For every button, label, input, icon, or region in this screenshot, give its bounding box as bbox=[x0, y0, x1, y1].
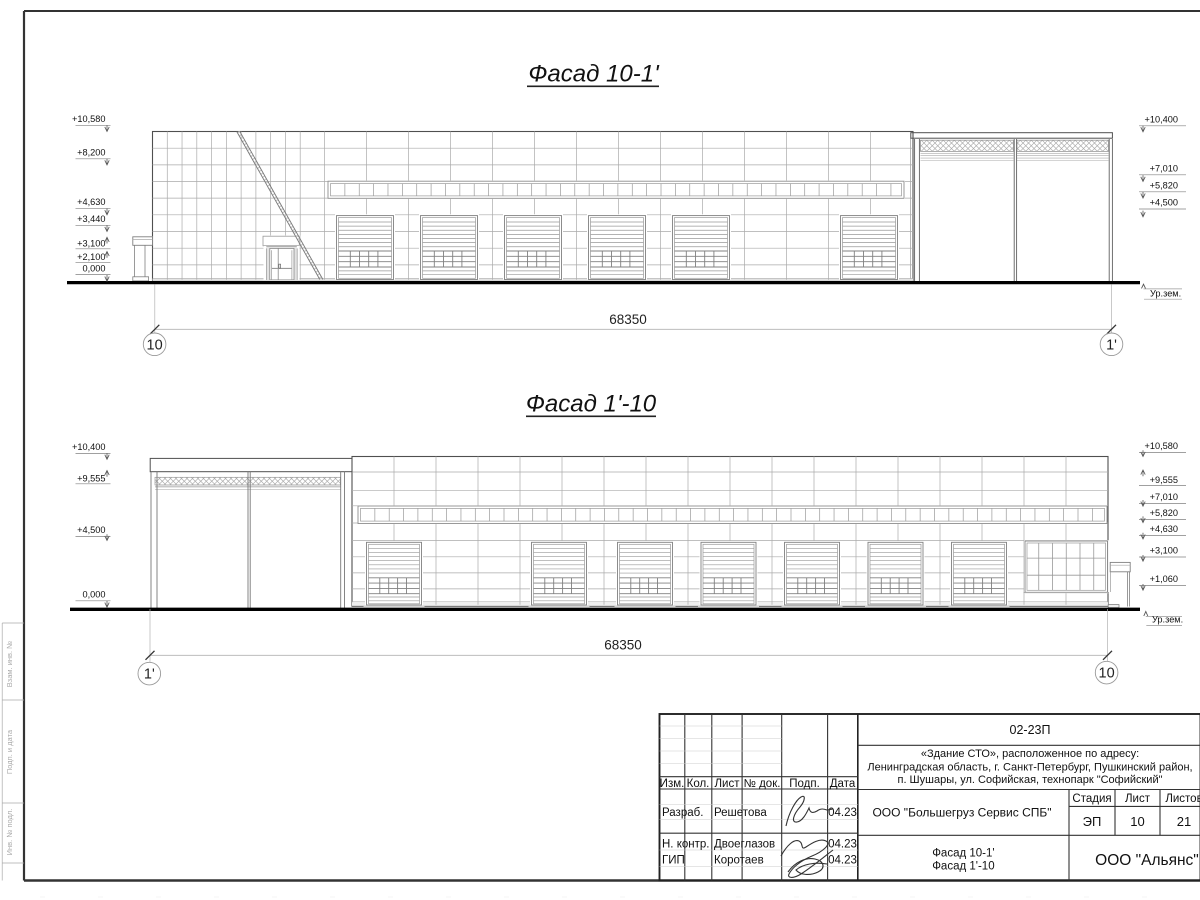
svg-text:Лист: Лист bbox=[715, 778, 741, 790]
svg-text:+10,580: +10,580 bbox=[1145, 441, 1178, 451]
svg-text:+3,440: +3,440 bbox=[77, 214, 105, 224]
svg-text:+4,500: +4,500 bbox=[77, 525, 105, 535]
svg-text:Решетова: Решетова bbox=[714, 807, 767, 819]
svg-text:п. Шушары, ул. Софийская, техн: п. Шушары, ул. Софийская, технопарк "Соф… bbox=[897, 774, 1162, 786]
svg-text:Изм.: Изм. bbox=[660, 778, 685, 790]
svg-text:Фасад 10-1': Фасад 10-1' bbox=[528, 61, 660, 88]
svg-text:68350: 68350 bbox=[604, 638, 642, 653]
svg-text:ЭП: ЭП bbox=[1083, 814, 1102, 829]
svg-text:+3,100: +3,100 bbox=[1150, 546, 1178, 556]
svg-text:Ленинградская область, г. Санк: Ленинградская область, г. Санкт-Петербур… bbox=[867, 762, 1192, 774]
svg-text:ООО "Большегруз Сервис СПБ": ООО "Большегруз Сервис СПБ" bbox=[872, 806, 1051, 820]
svg-text:Коротаев: Коротаев bbox=[714, 855, 764, 867]
svg-text:+5,820: +5,820 bbox=[1150, 508, 1178, 518]
svg-text:Фасад 1'-10: Фасад 1'-10 bbox=[932, 860, 994, 872]
svg-text:0,000: 0,000 bbox=[83, 263, 106, 273]
svg-text:Дата: Дата bbox=[830, 778, 856, 790]
svg-text:10: 10 bbox=[147, 337, 163, 353]
svg-text:+7,010: +7,010 bbox=[1150, 492, 1178, 502]
svg-text:Ур.зем.: Ур.зем. bbox=[1150, 288, 1181, 298]
svg-text:+8,200: +8,200 bbox=[77, 147, 105, 157]
svg-text:ООО "Альянс": ООО "Альянс" bbox=[1095, 852, 1199, 869]
svg-text:+4,630: +4,630 bbox=[1150, 524, 1178, 534]
svg-text:Разраб.: Разраб. bbox=[662, 807, 703, 819]
svg-text:Инв. № подл.: Инв. № подл. bbox=[5, 809, 14, 856]
svg-text:Листов: Листов bbox=[1165, 793, 1200, 805]
svg-text:ГИП: ГИП bbox=[662, 855, 685, 867]
svg-text:+10,400: +10,400 bbox=[1145, 114, 1178, 124]
svg-text:+2,100: +2,100 bbox=[77, 252, 105, 262]
svg-text:Лист: Лист bbox=[1125, 793, 1151, 805]
svg-text:04.23: 04.23 bbox=[828, 855, 857, 867]
svg-text:+3,100: +3,100 bbox=[77, 238, 105, 248]
svg-text:10: 10 bbox=[1130, 814, 1144, 829]
svg-text:Фасад 1'-10: Фасад 1'-10 bbox=[526, 391, 657, 418]
svg-text:+9,555: +9,555 bbox=[77, 473, 105, 483]
svg-text:«Здание СТО», расположенное по: «Здание СТО», расположенное по адресу: bbox=[921, 748, 1139, 760]
svg-text:+9,555: +9,555 bbox=[1150, 475, 1178, 485]
svg-text:68350: 68350 bbox=[609, 312, 647, 327]
svg-text:+7,010: +7,010 bbox=[1150, 163, 1178, 173]
svg-text:04.23: 04.23 bbox=[828, 839, 857, 851]
svg-text:Ур.зем.: Ур.зем. bbox=[1152, 615, 1183, 625]
svg-text:1': 1' bbox=[144, 667, 155, 683]
svg-text:Фасад 10-1': Фасад 10-1' bbox=[932, 847, 994, 859]
svg-text:+10,580: +10,580 bbox=[72, 114, 105, 124]
svg-text:Подп. и дата: Подп. и дата bbox=[5, 729, 14, 774]
svg-text:Кол.: Кол. bbox=[687, 778, 710, 790]
svg-text:0,000: 0,000 bbox=[83, 589, 106, 599]
svg-text:№ док.: № док. bbox=[744, 778, 781, 790]
svg-text:02-23П: 02-23П bbox=[1010, 723, 1051, 737]
svg-text:+1,060: +1,060 bbox=[1150, 574, 1178, 584]
svg-text:+4,630: +4,630 bbox=[77, 197, 105, 207]
svg-text:21: 21 bbox=[1177, 814, 1191, 829]
svg-text:Двоеглазов: Двоеглазов bbox=[714, 839, 775, 851]
svg-text:+4,500: +4,500 bbox=[1150, 198, 1178, 208]
svg-text:+10,400: +10,400 bbox=[72, 442, 105, 452]
svg-text:10: 10 bbox=[1099, 666, 1115, 682]
svg-text:Стадия: Стадия bbox=[1072, 793, 1111, 805]
svg-text:Подп.: Подп. bbox=[789, 778, 820, 790]
svg-text:1': 1' bbox=[1106, 337, 1117, 353]
svg-text:+5,820: +5,820 bbox=[1150, 180, 1178, 190]
svg-text:Н. контр.: Н. контр. bbox=[662, 839, 709, 851]
svg-text:Взам. инв. №: Взам. инв. № bbox=[5, 641, 14, 687]
